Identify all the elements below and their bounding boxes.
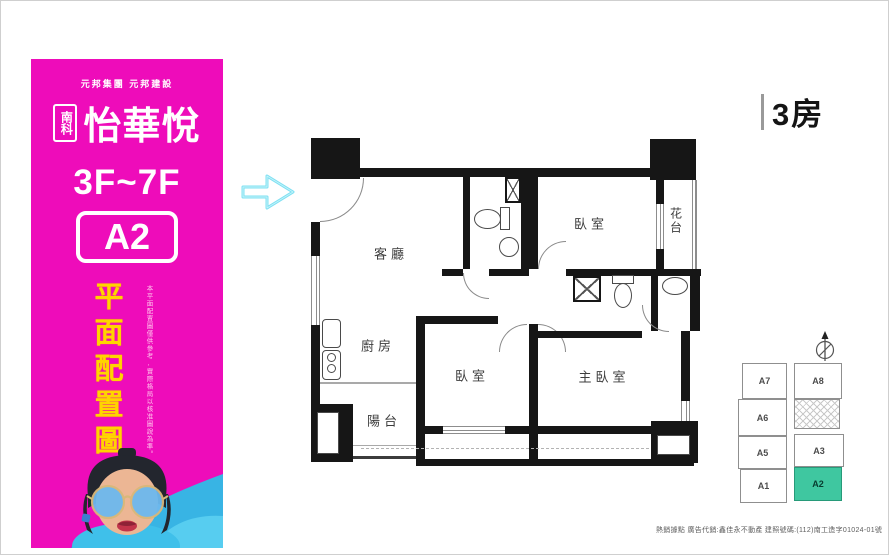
balcony-bottom-edge xyxy=(353,456,416,459)
keyplan-unit-a7: A7 xyxy=(742,363,787,399)
toilet-bath1-tank xyxy=(500,207,510,230)
keyplan-core xyxy=(794,399,840,429)
keyplan-unit-a2-highlighted: A2 xyxy=(794,467,842,501)
window-flower xyxy=(656,204,664,249)
wall-flower-left-lower xyxy=(656,249,664,269)
keyplan-unit-a1: A1 xyxy=(740,469,787,503)
keyplan-unit-a5: A5 xyxy=(738,436,787,469)
window-living xyxy=(311,256,320,325)
wall-bedroom2-master xyxy=(529,324,538,464)
wall-bottom-outer xyxy=(416,459,694,466)
floor-plan: 客廳 廚房 臥室 臥室 主臥室 陽台 花台 xyxy=(286,123,716,471)
wall-bath1-right xyxy=(521,177,538,269)
brand-sidebar: 元邦集團 元邦建設 南科 怡華悅 3F~7F A2 平面配置圖 本平面配置圖僅供… xyxy=(31,59,223,548)
wall-master-right xyxy=(681,331,690,401)
wall-masterbath-right xyxy=(690,269,700,331)
bedroom1-door-arc xyxy=(538,241,566,269)
key-plan: A7 A8 A6 A5 A3 A1 A2 xyxy=(734,333,886,535)
keyplan-unit-a6: A6 xyxy=(738,399,787,436)
project-prefix: 南科 xyxy=(53,104,77,142)
wall-flower-left-upper xyxy=(656,178,664,204)
room-label-bedroom2: 臥室 xyxy=(455,366,489,385)
project-name: 怡華悅 xyxy=(83,95,200,150)
bay-window-master xyxy=(657,435,690,455)
room-count-badge-wrap: 3房 xyxy=(761,89,824,134)
room-label-master: 主臥室 xyxy=(578,367,629,386)
sink-masterbath xyxy=(662,277,688,295)
wall-bottom-right xyxy=(505,426,651,434)
flower-outer-edge xyxy=(692,180,697,269)
toilet-masterbath-bowl xyxy=(614,283,632,308)
toilet-bath1-bowl xyxy=(474,209,501,229)
wall-masterbath-bottom xyxy=(538,331,642,338)
window-bedroom2 xyxy=(443,426,505,434)
duct-masterbath xyxy=(573,276,601,302)
kitchen-balcony-slider xyxy=(320,382,416,384)
footer-disclaimer: 熱銷據點 廣告代銷:鑫佳永不動產 建照號碼:(112)南工造字01024-01號 xyxy=(656,525,878,535)
balcony-rail-line xyxy=(353,445,416,446)
room-label-balcony: 陽台 xyxy=(367,411,401,430)
bedroom2-door-arc xyxy=(499,324,527,352)
room-label-flower: 花台 xyxy=(668,207,685,235)
master-door-arc xyxy=(538,324,566,352)
masterbath-door-arc xyxy=(642,305,669,332)
keyplan-unit-a8: A8 xyxy=(794,363,842,399)
wall-corridor-right xyxy=(489,269,529,276)
duct-bath1 xyxy=(505,177,521,203)
wall-bedroom2-top xyxy=(416,316,498,324)
wall-kitchen-bedroom2 xyxy=(416,316,425,464)
project-title-row: 南科 怡華悅 xyxy=(31,95,223,150)
kitchen-counter xyxy=(322,319,341,348)
wall-corridor-left xyxy=(442,269,463,276)
room-label-kitchen: 廚房 xyxy=(361,336,395,355)
room-label-living: 客廳 xyxy=(374,244,408,263)
column-top-right xyxy=(650,139,696,180)
eave-dashed-line xyxy=(361,448,649,449)
room-count-badge: 3房 xyxy=(772,89,824,134)
unit-badge: A2 xyxy=(76,211,178,263)
wall-bottom-left xyxy=(425,426,443,434)
woman-illustration xyxy=(31,446,223,548)
room-label-bedroom1: 臥室 xyxy=(574,214,608,233)
badge-divider xyxy=(761,94,764,130)
wall-left-lower xyxy=(311,325,320,407)
vertical-disclaimer: 本平面配置圖僅供參考,實際格局以核准圖說為準。 xyxy=(143,285,153,458)
bath1-door-arc xyxy=(463,273,489,299)
developer-names: 元邦集團 元邦建設 xyxy=(31,77,223,90)
floor-range: 3F~7F xyxy=(31,163,223,203)
column-top-left xyxy=(311,138,360,179)
north-arrow-icon xyxy=(808,331,842,363)
vertical-title: 平面配置圖 xyxy=(85,281,127,461)
poster-page: 元邦集團 元邦建設 南科 怡華悅 3F~7F A2 平面配置圖 本平面配置圖僅供… xyxy=(0,0,889,555)
wall-top xyxy=(356,168,658,177)
balcony-window xyxy=(317,412,339,454)
keyplan-unit-a3: A3 xyxy=(794,434,844,467)
kitchen-stove xyxy=(322,350,341,380)
wall-left-upper xyxy=(311,222,320,256)
entry-door-arc xyxy=(320,178,364,222)
sink-bath1 xyxy=(499,237,519,257)
wall-bath1-left xyxy=(463,177,470,269)
window-master-right xyxy=(681,401,690,423)
